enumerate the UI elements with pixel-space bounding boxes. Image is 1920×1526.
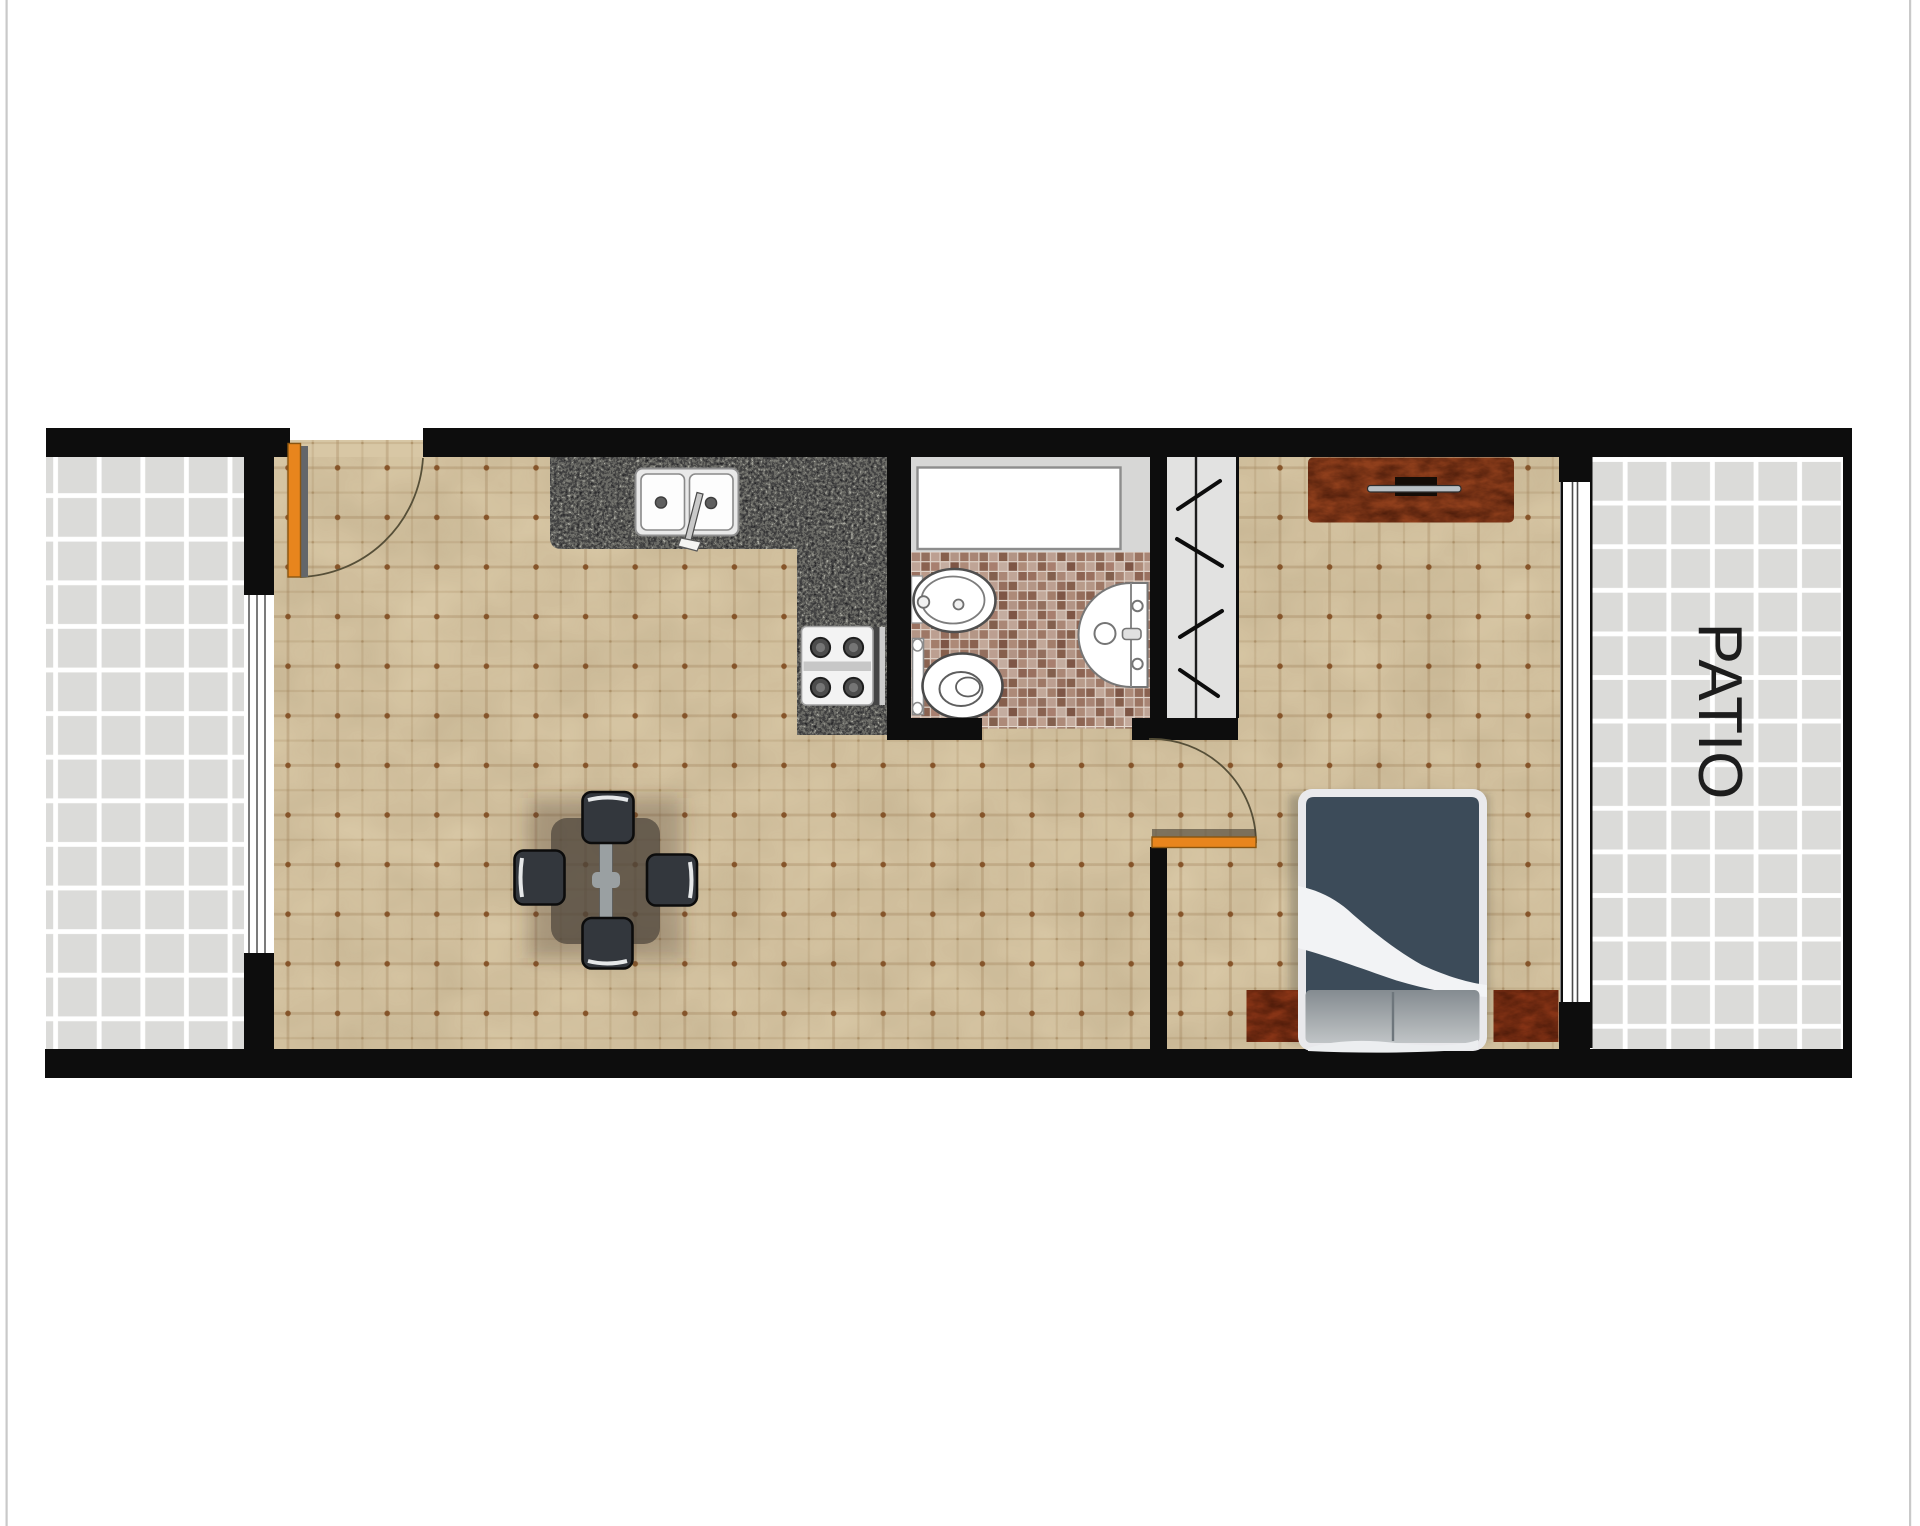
svg-text:PATIO: PATIO: [1685, 623, 1754, 800]
